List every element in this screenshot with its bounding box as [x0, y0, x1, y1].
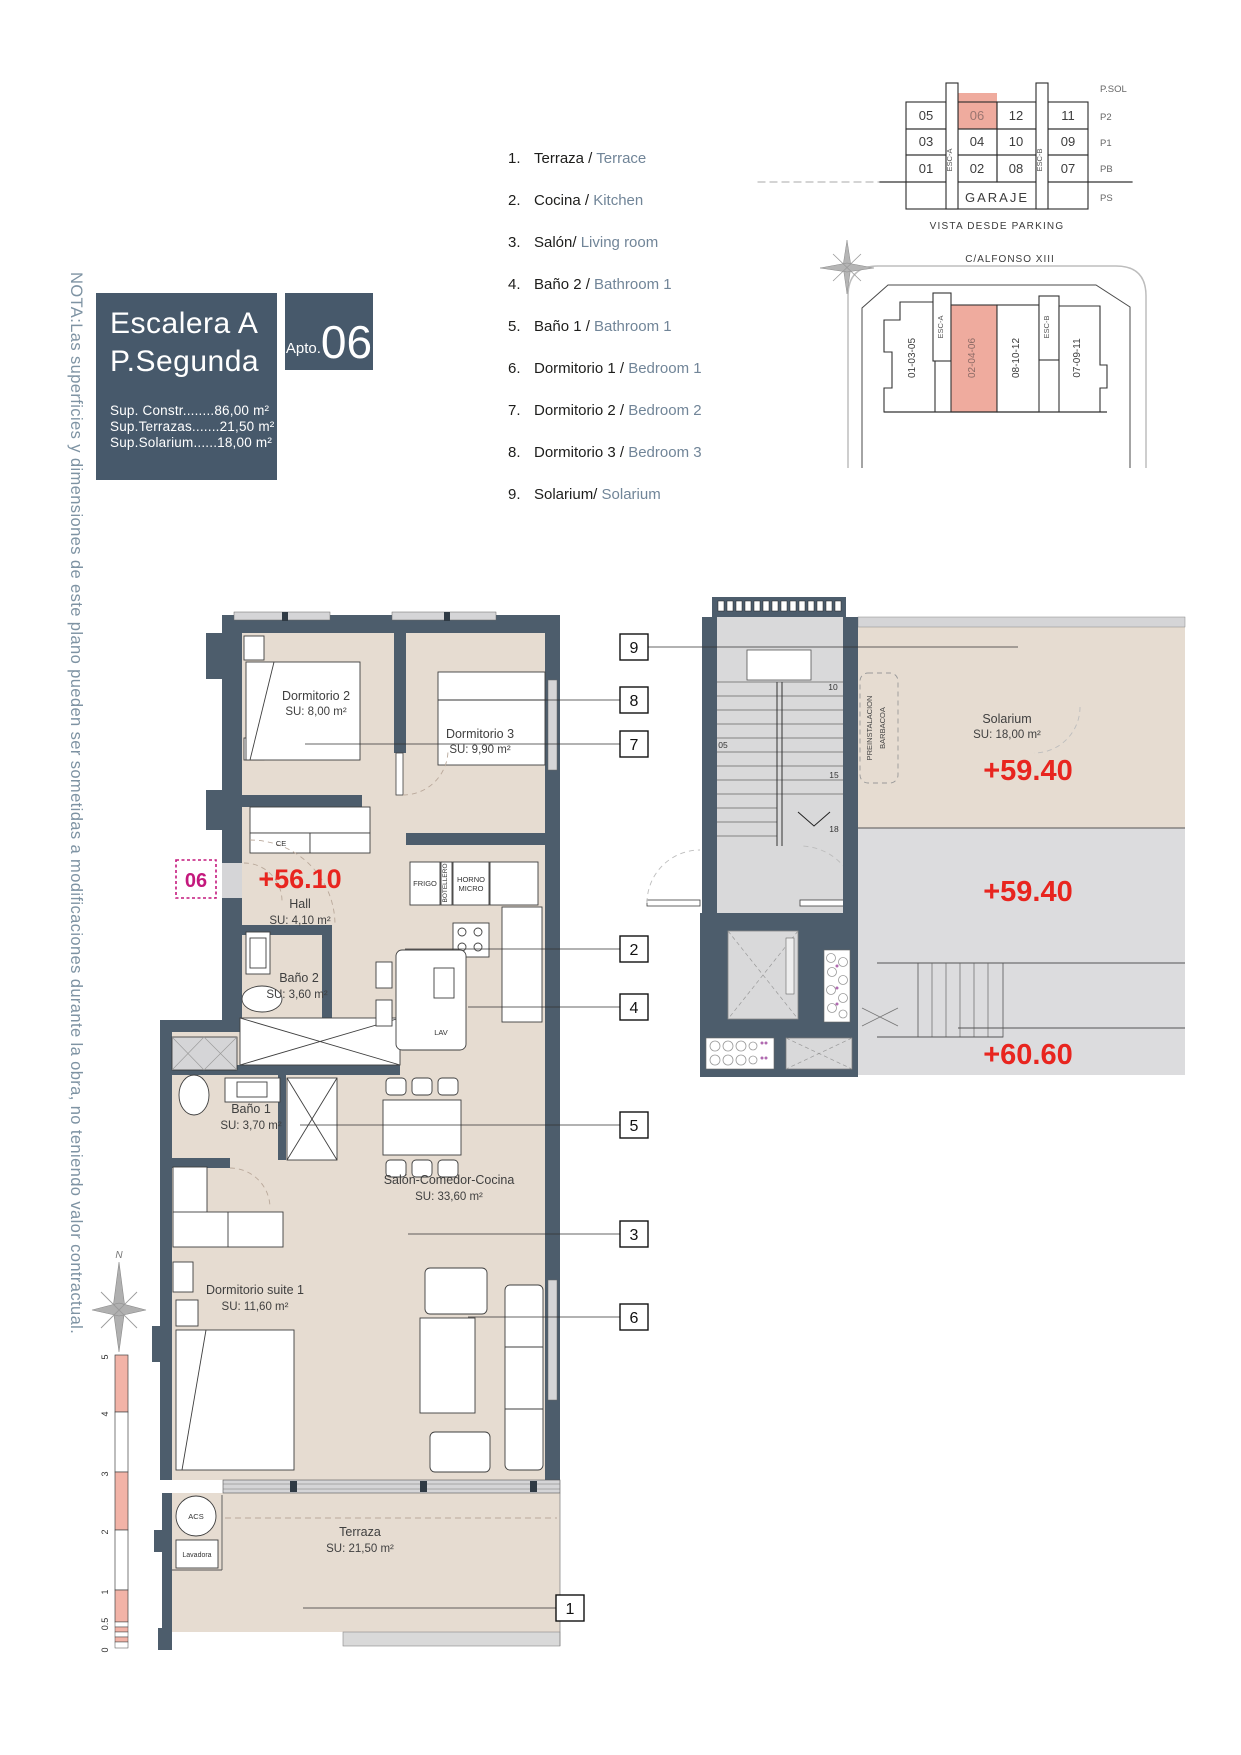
terrace-slab [343, 1632, 560, 1646]
svg-text:SU: 21,50 m²: SU: 21,50 m² [326, 1543, 394, 1555]
svg-text:3: 3 [630, 1227, 639, 1244]
botellero-label: BOTELLERO [442, 863, 449, 902]
label-suite: Dormitorio suite 1 [206, 1283, 304, 1297]
svg-text:SU: 3,60 m²: SU: 3,60 m² [266, 989, 328, 1001]
site-label-01-03-05: 01-03-05 [907, 338, 918, 378]
cell-08: 08 [1009, 161, 1023, 176]
cell-04: 04 [970, 134, 984, 149]
scale-bar: 5 4 3 2 1 0.5 0 [100, 1354, 128, 1652]
site-label-08-10-12: 08-10-12 [1011, 338, 1022, 378]
compass-north: N [115, 1250, 123, 1261]
svg-text:4: 4 [100, 1411, 110, 1416]
solarium-floor [858, 627, 1185, 828]
stair-num-10: 10 [828, 682, 838, 692]
floor-label-p1: P1 [1100, 138, 1112, 149]
label-solarium: Solarium [982, 712, 1031, 726]
micro-label: MICRO [459, 884, 484, 893]
svg-text:SU: 11,60 m²: SU: 11,60 m² [222, 1301, 289, 1313]
svg-text:4: 4 [630, 1000, 639, 1017]
svg-text:5: 5 [630, 1118, 639, 1135]
label-dorm3: Dormitorio 3 [446, 727, 514, 741]
site-compass-icon [820, 240, 874, 294]
label-dorm2: Dormitorio 2 [282, 689, 350, 703]
svg-text:SU: 3,70 m²: SU: 3,70 m² [220, 1120, 282, 1132]
cell-06: 06 [970, 108, 984, 123]
floor-label-ps: PS [1100, 193, 1113, 204]
site-label-02-04-06: 02-04-06 [967, 338, 978, 378]
floor-label-p2: P2 [1100, 112, 1112, 123]
label-salon: Salón-Comedor-Cocina [384, 1173, 515, 1187]
svg-text:6: 6 [630, 1310, 639, 1327]
toilet-bano1 [179, 1075, 209, 1115]
cell-07: 07 [1061, 161, 1075, 176]
svg-text:SU: 4,10 m²: SU: 4,10 m² [269, 915, 331, 927]
entry-threshold [222, 863, 242, 898]
kitchen-island [396, 950, 466, 1050]
plan-graphics: 05 06 12 11 03 04 10 09 01 02 08 07 GARA… [0, 0, 1241, 1755]
svg-text:3: 3 [100, 1471, 110, 1476]
floor-label-pb: PB [1100, 164, 1113, 175]
svg-text:9: 9 [630, 640, 639, 657]
svg-text:SU: 33,60 m²: SU: 33,60 m² [415, 1191, 483, 1203]
esc-b-label: ESC-B [1035, 149, 1044, 172]
cell-12: 12 [1009, 108, 1023, 123]
elevation-landing: +59.40 [983, 876, 1073, 908]
stair-num-05: 05 [718, 740, 728, 750]
sofa [505, 1285, 543, 1470]
elevation-upper: +60.60 [983, 1039, 1073, 1071]
site-plan-diagram: C/ALFONSO XIII 01-03-05 02-04-06 08-10-1… [820, 240, 1146, 468]
lavadora-label: Lavadora [182, 1552, 211, 1559]
elevation-solarium: +59.40 [983, 755, 1073, 787]
floor-label-psol: P.SOL [1100, 84, 1127, 95]
svg-text:8: 8 [630, 693, 639, 710]
label-bano1: Baño 1 [231, 1102, 271, 1116]
cell-09: 09 [1061, 134, 1075, 149]
site-label-07-09-11: 07-09-11 [1072, 338, 1083, 378]
esc-a-shaft [946, 83, 958, 209]
balcony-glazing [223, 1480, 560, 1493]
barbacoa-label-2: BARBACOA [878, 707, 887, 749]
solarium-parapet [858, 617, 1185, 627]
svg-text:2: 2 [630, 942, 639, 959]
barbacoa-label-1: PREINSTALACION [865, 696, 874, 761]
ce-label: CE [276, 839, 286, 848]
parking-section-diagram: 05 06 12 11 03 04 10 09 01 02 08 07 GARA… [758, 83, 1132, 232]
cell-11: 11 [1061, 108, 1075, 123]
compass-icon: N S [92, 1250, 146, 1371]
floor-plan-sheet: NOTA:Las superficies y dimensiones de es… [0, 0, 1241, 1755]
shower-tray [172, 1037, 237, 1070]
dining-table [383, 1100, 461, 1155]
meters-box [706, 1038, 774, 1069]
frigo-label: FRIGO [413, 879, 437, 888]
stair-num-15: 15 [829, 770, 839, 780]
cell-05: 05 [919, 108, 933, 123]
svg-text:2: 2 [100, 1529, 110, 1534]
coffee-table [420, 1318, 475, 1413]
garage-label: GARAJE [965, 190, 1029, 205]
svg-text:SU: 9,90 m²: SU: 9,90 m² [449, 744, 511, 756]
svg-text:0.5: 0.5 [100, 1618, 110, 1631]
label-terraza: Terraza [339, 1525, 381, 1539]
label-bano2: Baño 2 [279, 971, 319, 985]
site-label-esc-b: ESC-B [1042, 316, 1051, 339]
cell-02: 02 [970, 161, 984, 176]
site-block-07-09-11 [1059, 306, 1107, 412]
svg-text:5: 5 [100, 1354, 110, 1359]
svg-text:0: 0 [100, 1647, 110, 1652]
svg-text:SU: 18,00 m²: SU: 18,00 m² [973, 729, 1041, 741]
armchair [425, 1268, 487, 1314]
vista-desde-parking-caption: VISTA DESDE PARKING [930, 221, 1065, 232]
unit-marker: 06 [176, 860, 216, 898]
label-hall: Hall [289, 897, 311, 911]
lav-label: LAV [434, 1028, 448, 1037]
cell-03: 03 [919, 134, 933, 149]
esc-b-shaft [1036, 83, 1048, 209]
cell-01: 01 [919, 161, 933, 176]
acs-label: ACS [188, 1512, 203, 1521]
svg-text:SU: 8,00 m²: SU: 8,00 m² [285, 706, 347, 718]
elevation-hall: +56.10 [258, 864, 341, 894]
horno-label: HORNO [457, 875, 485, 884]
svg-text:1: 1 [100, 1589, 110, 1594]
site-label-esc-a: ESC-A [936, 316, 945, 339]
svg-text:7: 7 [630, 737, 639, 754]
unit-marker-number: 06 [185, 870, 207, 892]
esc-a-label: ESC-A [945, 149, 954, 172]
cell-10: 10 [1009, 134, 1023, 149]
street-label: C/ALFONSO XIII [965, 254, 1055, 265]
svg-text:1: 1 [566, 1601, 575, 1618]
stair-num-18: 18 [829, 824, 839, 834]
upper-common-floor [858, 828, 1185, 1075]
